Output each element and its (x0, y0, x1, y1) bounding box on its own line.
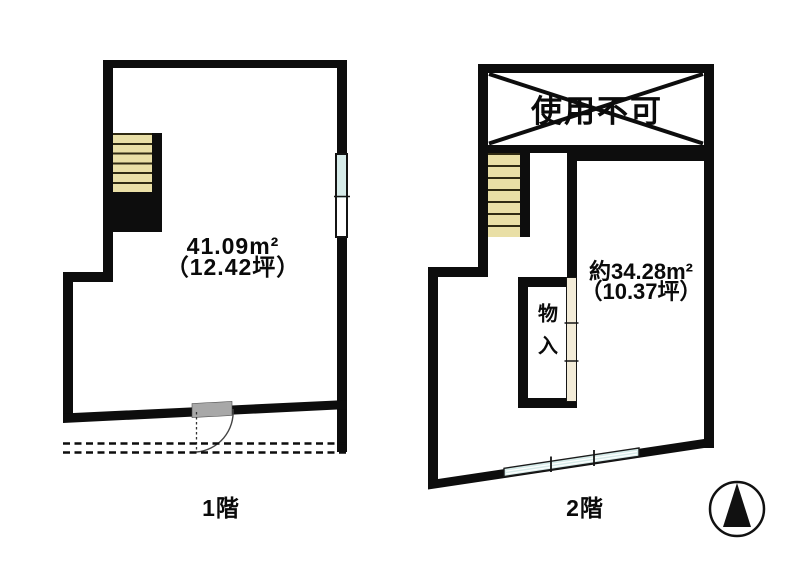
entrance-door (192, 402, 232, 418)
floor2-area-tsubo: （10.37坪） (580, 282, 701, 302)
window (504, 448, 639, 477)
window-glass-line (506, 452, 637, 472)
window-glass-line (506, 454, 637, 474)
unusable-area-label: 使用不可 (531, 86, 663, 131)
floor1-caption: 1階 (202, 489, 240, 523)
floor1-area-label: 41.09m² （12.42坪） (166, 236, 301, 278)
floor2-area-label: 約34.28m² （10.37坪） (580, 262, 701, 302)
floor2-caption: 2階 (566, 489, 604, 523)
closet-label: 物入 (532, 303, 561, 367)
compass-north-icon (710, 482, 764, 536)
floorplan-canvas: 41.09m² （12.42坪） 約34.28m² （10.37坪） 使用不可 … (0, 0, 800, 563)
floor1-area-tsubo: （12.42坪） (166, 257, 301, 278)
